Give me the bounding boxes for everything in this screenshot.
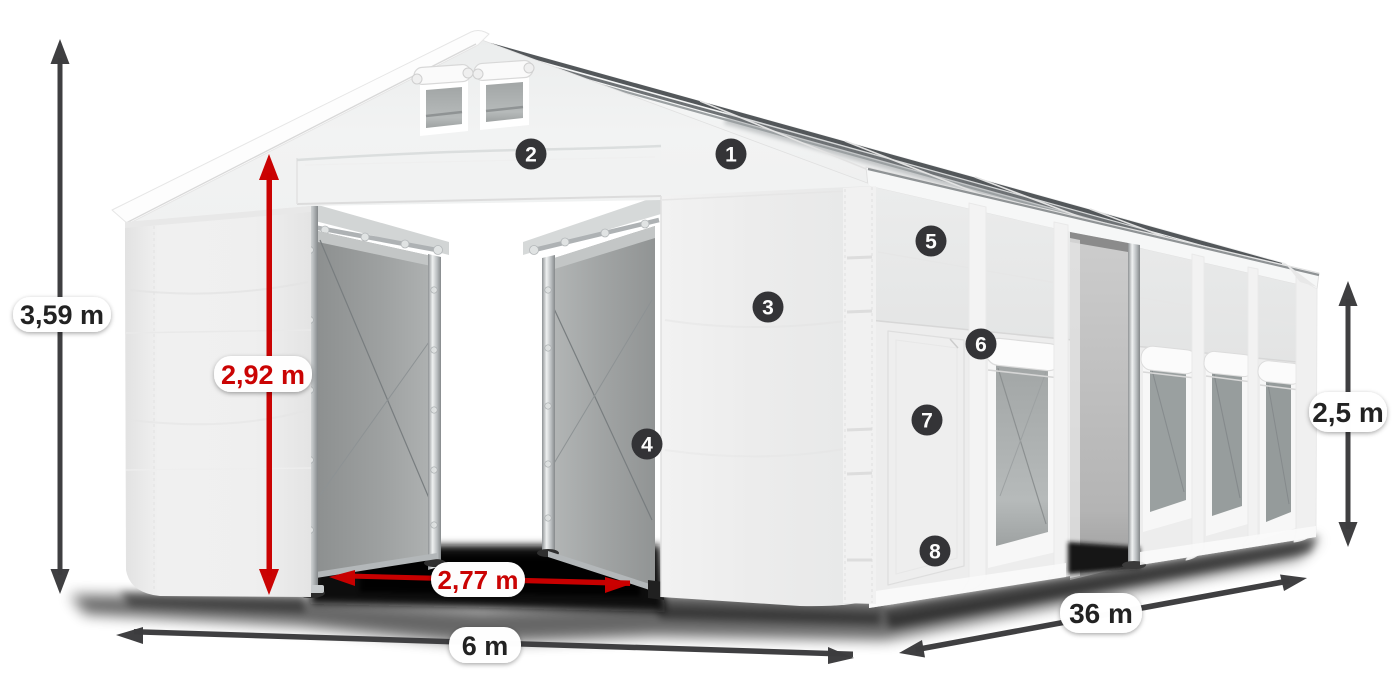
svg-text:2,77 m: 2,77 m	[438, 565, 519, 595]
svg-text:4: 4	[641, 434, 653, 457]
svg-text:1: 1	[725, 144, 737, 167]
svg-text:5: 5	[925, 231, 937, 254]
svg-text:2: 2	[525, 144, 537, 167]
svg-text:3: 3	[762, 297, 774, 320]
svg-text:2,92 m: 2,92 m	[221, 360, 305, 390]
svg-text:6: 6	[975, 334, 987, 357]
svg-text:2,5 m: 2,5 m	[1312, 397, 1384, 428]
svg-text:6 m: 6 m	[462, 631, 509, 661]
svg-text:3,59 m: 3,59 m	[20, 300, 104, 330]
svg-text:8: 8	[929, 541, 941, 564]
svg-text:7: 7	[921, 410, 933, 433]
svg-text:36 m: 36 m	[1069, 598, 1133, 629]
